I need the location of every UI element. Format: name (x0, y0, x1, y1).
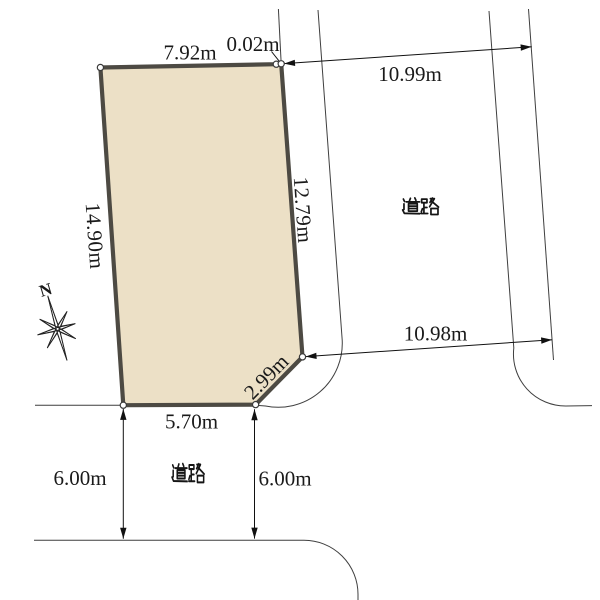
svg-text:10.98m: 10.98m (404, 322, 468, 346)
svg-text:5.70m: 5.70m (165, 410, 218, 434)
svg-text:6.00m: 6.00m (258, 467, 311, 491)
svg-text:6.00m: 6.00m (53, 466, 106, 490)
svg-text:14.90m: 14.90m (81, 202, 110, 270)
svg-text:0.02m: 0.02m (226, 32, 279, 56)
svg-text:7.92m: 7.92m (163, 41, 216, 65)
svg-text:10.99m: 10.99m (378, 62, 442, 86)
svg-text:12.79m: 12.79m (289, 176, 318, 244)
svg-text:N: N (37, 279, 55, 301)
